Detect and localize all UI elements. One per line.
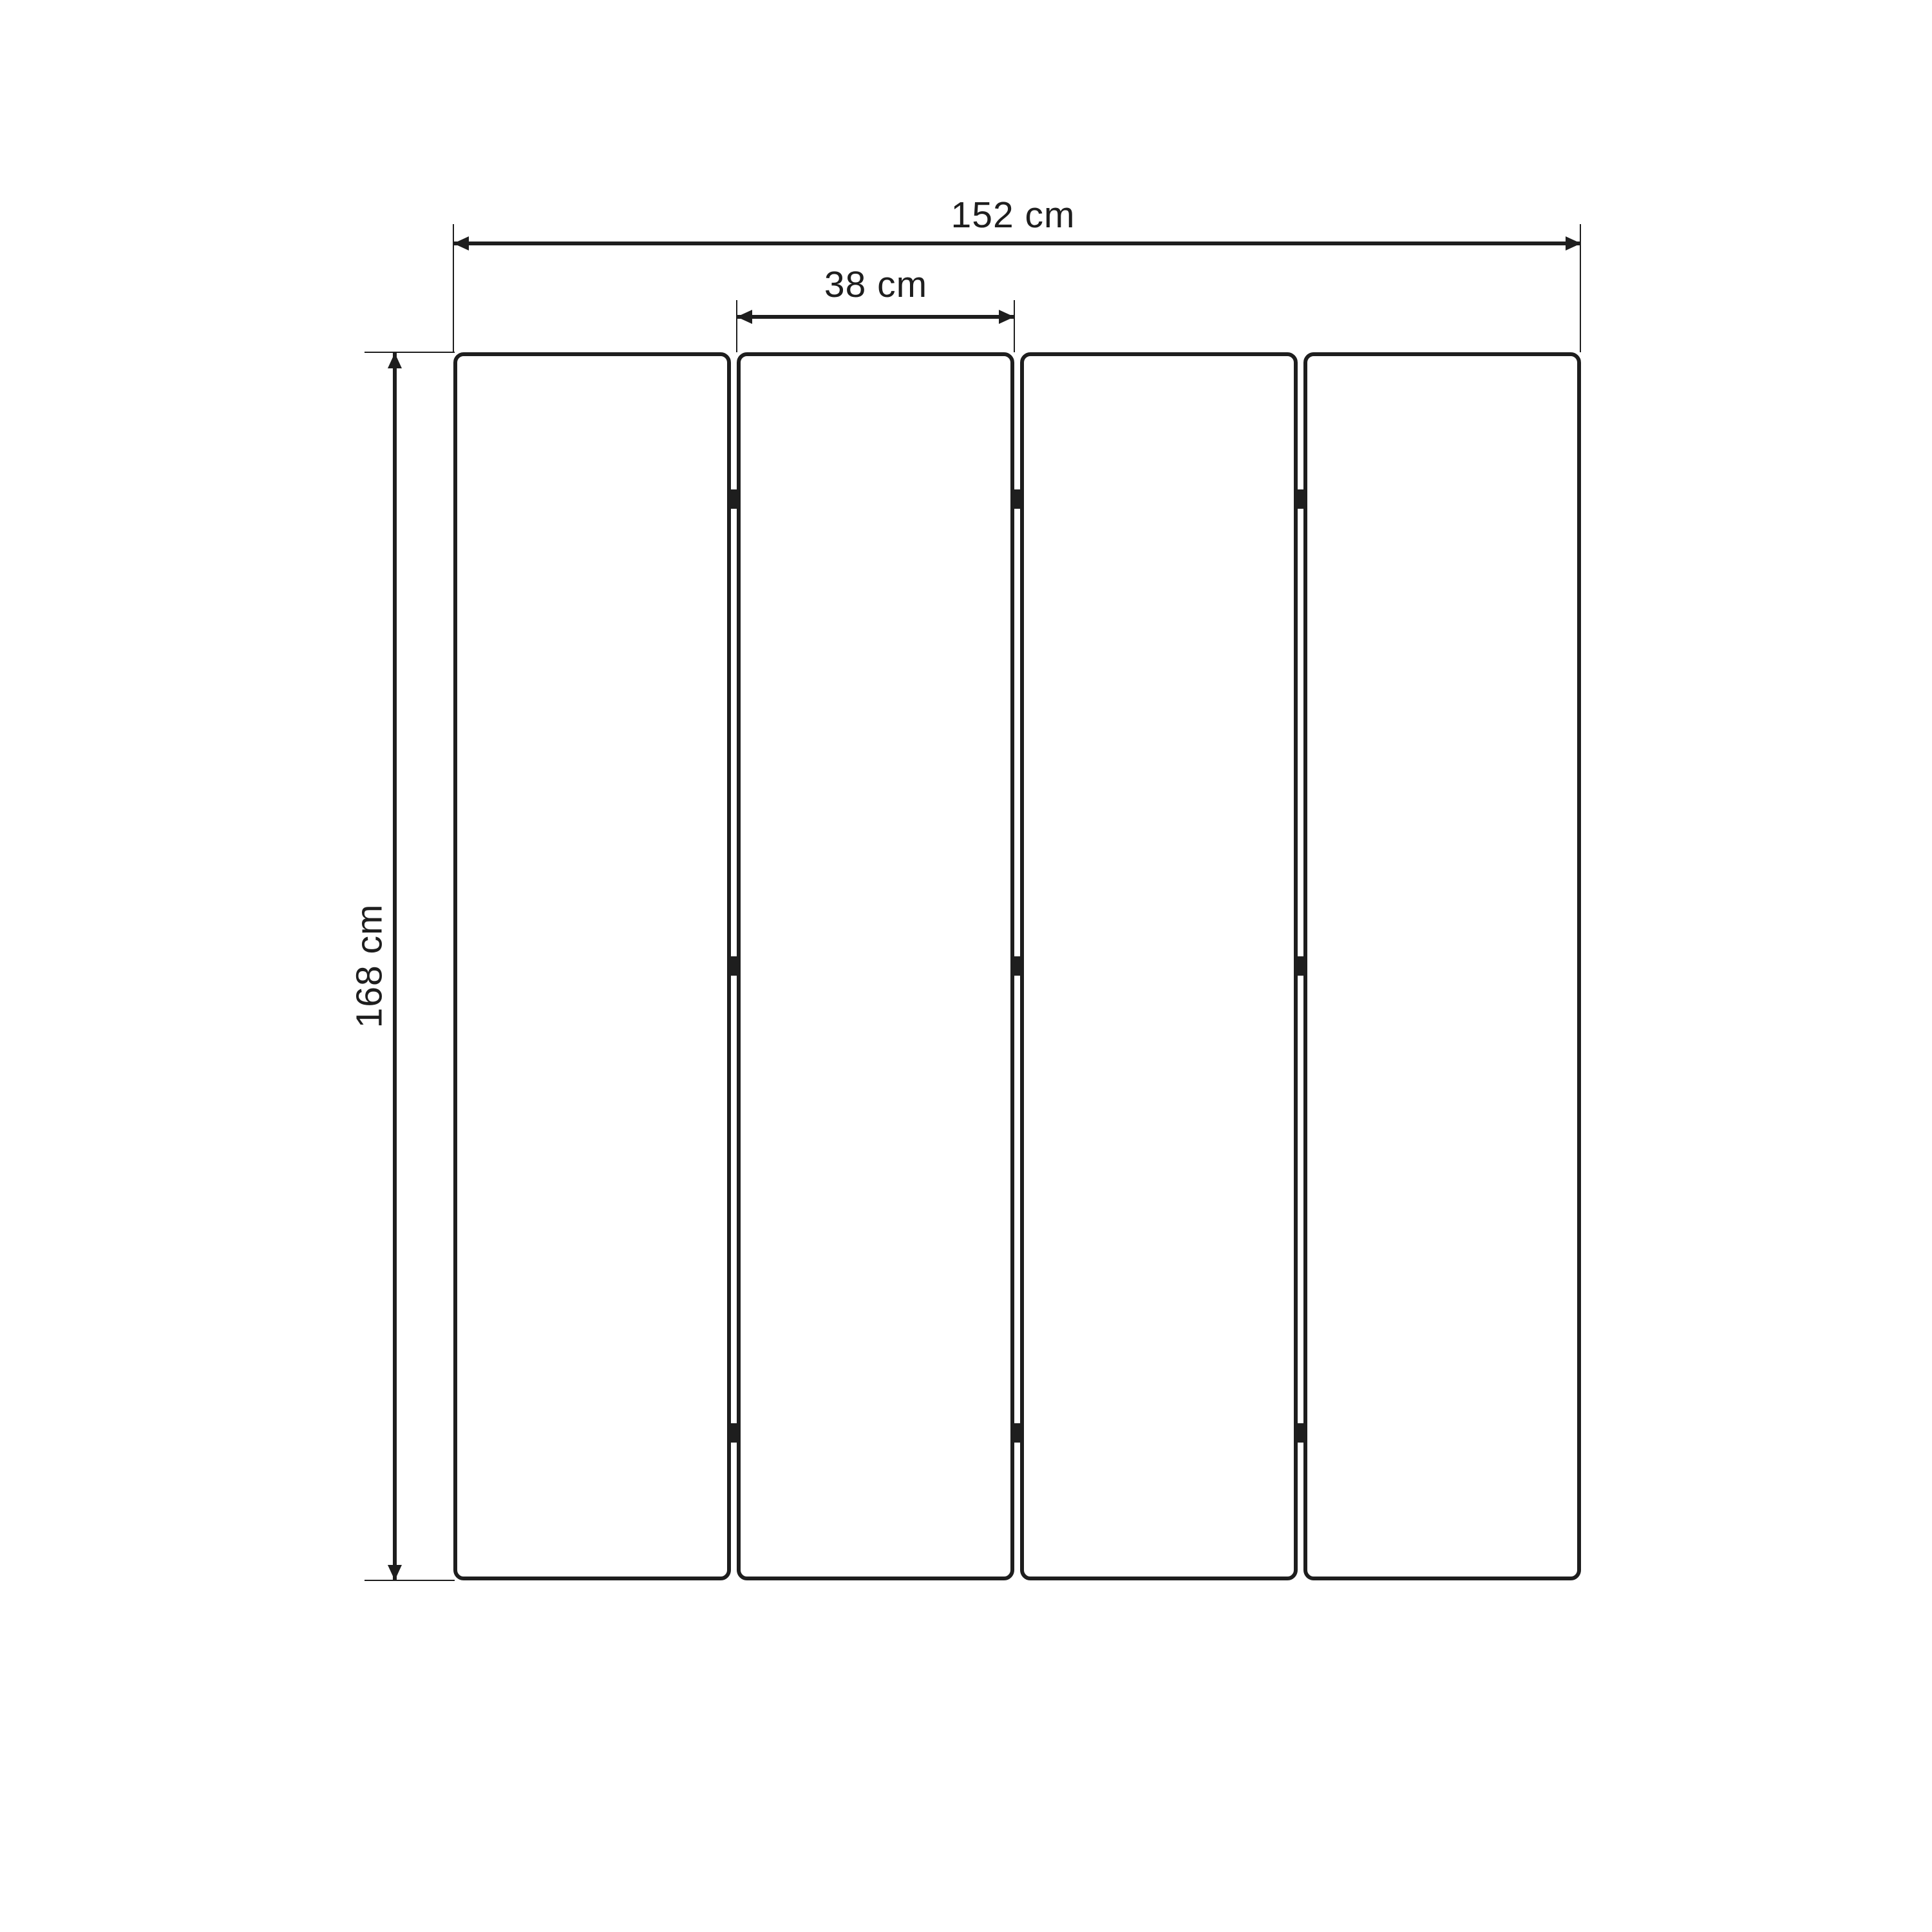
extension-line-height-top bbox=[365, 352, 455, 353]
total-width-dimension-label: 152 cm bbox=[951, 197, 1075, 234]
total-width-dimension-line bbox=[453, 241, 1581, 245]
arrowhead-left-icon bbox=[737, 310, 752, 324]
panel-width-dimension-line bbox=[737, 315, 1014, 319]
divider-panel-2 bbox=[737, 352, 1014, 1580]
arrowhead-right-icon bbox=[1566, 236, 1581, 251]
hinge-mark bbox=[728, 489, 739, 509]
extension-line-height-bottom bbox=[365, 1580, 455, 1581]
hinge-mark bbox=[1295, 1423, 1306, 1443]
arrowhead-down-icon bbox=[388, 1565, 402, 1580]
extension-line-panel-width-right bbox=[1014, 300, 1015, 352]
height-dimension-label: 168 cm bbox=[352, 904, 388, 1028]
divider-panel-1 bbox=[453, 352, 731, 1580]
height-dimension-line bbox=[393, 352, 397, 1580]
hinge-mark bbox=[1295, 489, 1306, 509]
dimension-diagram: 152 cm 38 cm 168 cm bbox=[0, 0, 1932, 1932]
hinge-mark bbox=[728, 956, 739, 976]
panel-width-dimension-label: 38 cm bbox=[824, 267, 927, 303]
hinge-mark bbox=[728, 1423, 739, 1443]
divider-panel-4 bbox=[1303, 352, 1581, 1580]
hinge-mark bbox=[1295, 956, 1306, 976]
arrowhead-up-icon bbox=[388, 353, 402, 368]
arrowhead-right-icon bbox=[999, 310, 1014, 324]
arrowhead-left-icon bbox=[453, 236, 469, 251]
hinge-mark bbox=[1012, 489, 1023, 509]
divider-panel-3 bbox=[1020, 352, 1298, 1580]
hinge-mark bbox=[1012, 956, 1023, 976]
extension-line-panel-width-left bbox=[736, 300, 737, 352]
hinge-mark bbox=[1012, 1423, 1023, 1443]
